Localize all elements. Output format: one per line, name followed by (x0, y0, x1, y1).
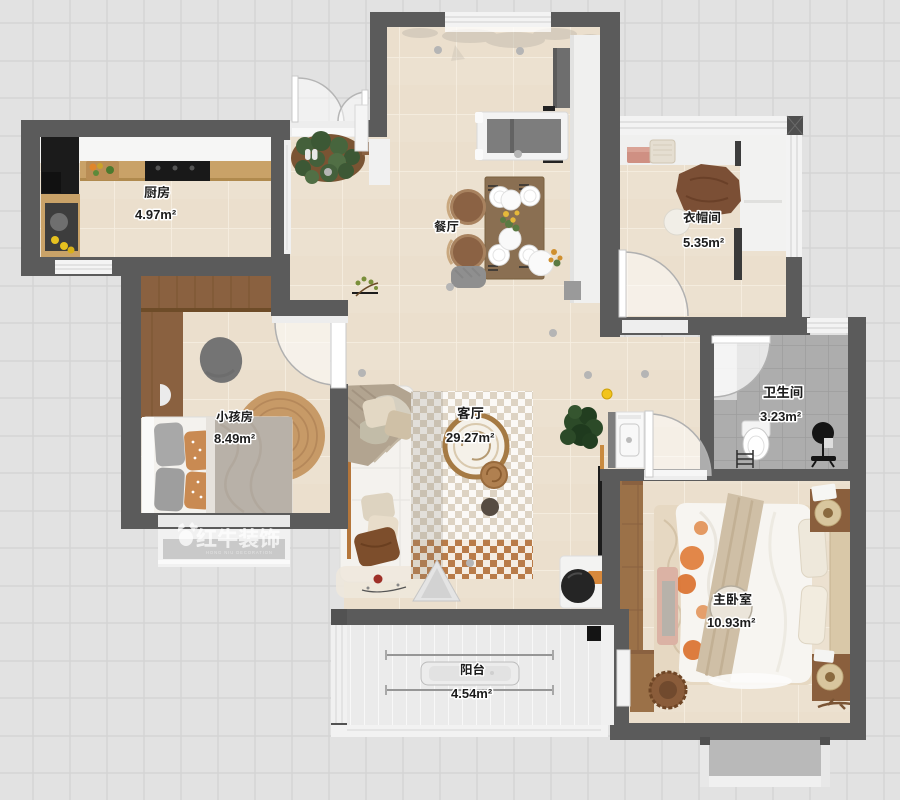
svg-text:HONG NIU DECORATION: HONG NIU DECORATION (206, 550, 273, 555)
svg-text:29.27m²: 29.27m² (446, 430, 495, 445)
svg-text:10.93m²: 10.93m² (707, 615, 756, 630)
svg-text:5.35m²: 5.35m² (683, 235, 725, 250)
svg-text:8.49m²: 8.49m² (214, 431, 256, 446)
svg-text:3.23m²: 3.23m² (760, 409, 802, 424)
svg-text:4.54m²: 4.54m² (451, 686, 493, 701)
svg-text:4.97m²: 4.97m² (135, 207, 177, 222)
